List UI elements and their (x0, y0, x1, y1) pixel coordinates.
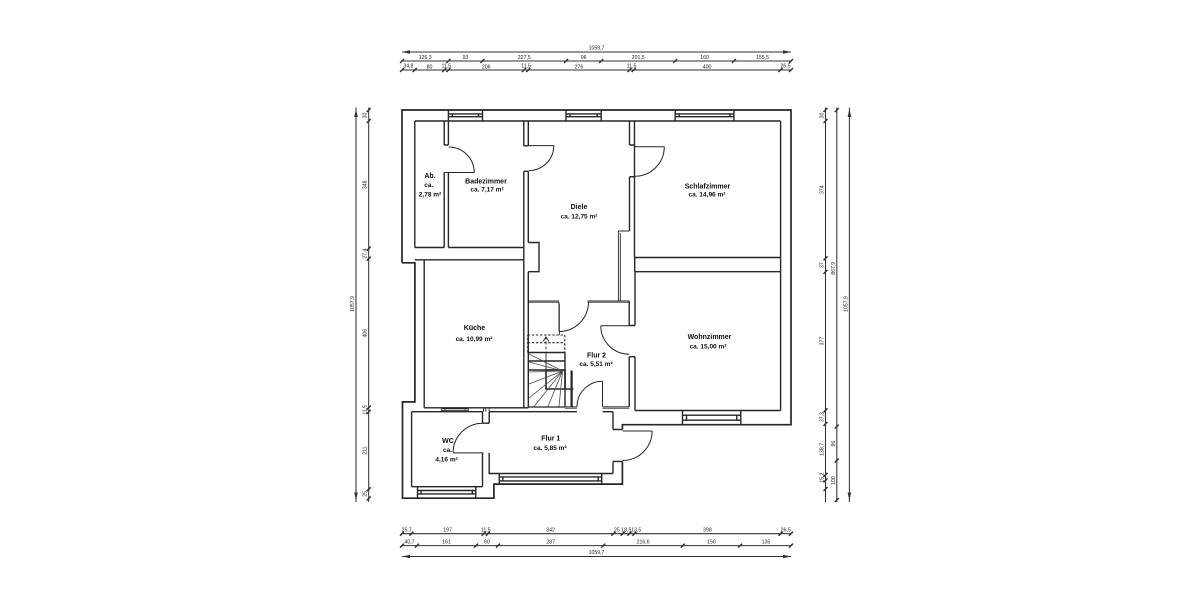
svg-text:ca. 15,00 m²: ca. 15,00 m² (690, 343, 728, 350)
svg-text:11,5: 11,5 (627, 64, 637, 70)
svg-text:80: 80 (427, 65, 433, 71)
svg-text:15,2: 15,2 (820, 472, 826, 482)
svg-text:Ab.: Ab. (424, 173, 435, 180)
svg-text:11,5: 11,5 (441, 64, 451, 70)
svg-text:1059,7: 1059,7 (589, 46, 605, 52)
svg-text:30: 30 (820, 113, 826, 119)
svg-text:40,7: 40,7 (404, 539, 414, 545)
svg-text:276: 276 (575, 65, 584, 71)
svg-text:26,5: 26,5 (781, 528, 791, 534)
svg-text:30: 30 (363, 113, 369, 119)
svg-text:374: 374 (820, 185, 826, 194)
svg-text:135: 135 (762, 539, 771, 545)
svg-text:161: 161 (442, 539, 451, 545)
svg-text:37,3: 37,3 (820, 412, 826, 422)
svg-text:96: 96 (831, 441, 837, 447)
svg-text:27,4: 27,4 (363, 249, 369, 259)
svg-text:11,5: 11,5 (481, 528, 491, 534)
svg-text:ca.: ca. (443, 447, 452, 454)
svg-text:18,5: 18,5 (621, 528, 631, 534)
svg-text:211: 211 (363, 446, 369, 454)
svg-text:1057,9: 1057,9 (843, 296, 849, 312)
svg-text:Diele: Diele (571, 204, 588, 211)
svg-text:Flur 1: Flur 1 (541, 436, 560, 443)
svg-text:37: 37 (820, 262, 826, 268)
svg-text:11,5: 11,5 (521, 64, 531, 70)
svg-text:Schlafzimmer: Schlafzimmer (685, 183, 731, 190)
svg-text:25: 25 (614, 528, 620, 534)
svg-text:ca. 7,17 m²: ca. 7,17 m² (470, 186, 504, 193)
svg-text:ca. 5,51 m²: ca. 5,51 m² (579, 361, 613, 368)
svg-text:25: 25 (363, 491, 369, 497)
svg-text:1059,7: 1059,7 (589, 550, 605, 556)
svg-text:100: 100 (831, 476, 837, 485)
svg-text:60: 60 (484, 539, 490, 545)
svg-text:206: 206 (482, 65, 491, 71)
svg-text:160: 160 (700, 55, 709, 61)
svg-text:96: 96 (581, 55, 587, 61)
svg-text:287: 287 (546, 539, 555, 545)
svg-text:26,5: 26,5 (781, 64, 791, 70)
svg-text:4,16 m²: 4,16 m² (435, 457, 458, 464)
svg-text:377: 377 (820, 337, 826, 346)
svg-text:ca. 5,85 m²: ca. 5,85 m² (533, 445, 567, 452)
svg-text:Flur 2: Flur 2 (587, 353, 606, 360)
svg-text:156: 156 (707, 539, 716, 545)
svg-text:216,6: 216,6 (637, 539, 650, 545)
svg-text:13,5: 13,5 (631, 528, 641, 534)
svg-text:406: 406 (363, 329, 369, 338)
svg-text:400: 400 (703, 65, 712, 71)
svg-text:1057,9: 1057,9 (350, 296, 356, 312)
svg-text:WC: WC (442, 438, 454, 445)
svg-text:93: 93 (463, 55, 469, 61)
svg-text:ca. 12,75 m²: ca. 12,75 m² (561, 214, 599, 221)
svg-text:2,78 m²: 2,78 m² (419, 191, 442, 198)
svg-text:Wohnzimmer: Wohnzimmer (688, 334, 732, 341)
svg-text:11,5: 11,5 (363, 405, 369, 415)
svg-text:138,7: 138,7 (820, 443, 826, 456)
svg-text:126,3: 126,3 (419, 55, 432, 61)
svg-text:Küche: Küche (464, 325, 486, 332)
svg-text:398: 398 (703, 528, 712, 534)
svg-text:Badezimmer: Badezimmer (465, 179, 507, 186)
svg-text:ca. 14,96 m²: ca. 14,96 m² (689, 192, 727, 199)
svg-text:25,7: 25,7 (402, 528, 412, 534)
svg-text:227,5: 227,5 (518, 55, 531, 61)
svg-text:867,9: 867,9 (831, 262, 837, 275)
svg-text:155,5: 155,5 (756, 55, 769, 61)
svg-text:342: 342 (546, 528, 555, 534)
svg-text:197: 197 (443, 528, 452, 534)
svg-text:348: 348 (363, 180, 369, 189)
svg-text:201,5: 201,5 (632, 55, 645, 61)
svg-text:ca. 10,99 m²: ca. 10,99 m² (456, 336, 494, 343)
svg-text:34,8: 34,8 (403, 64, 413, 70)
svg-text:ca.: ca. (424, 182, 433, 189)
